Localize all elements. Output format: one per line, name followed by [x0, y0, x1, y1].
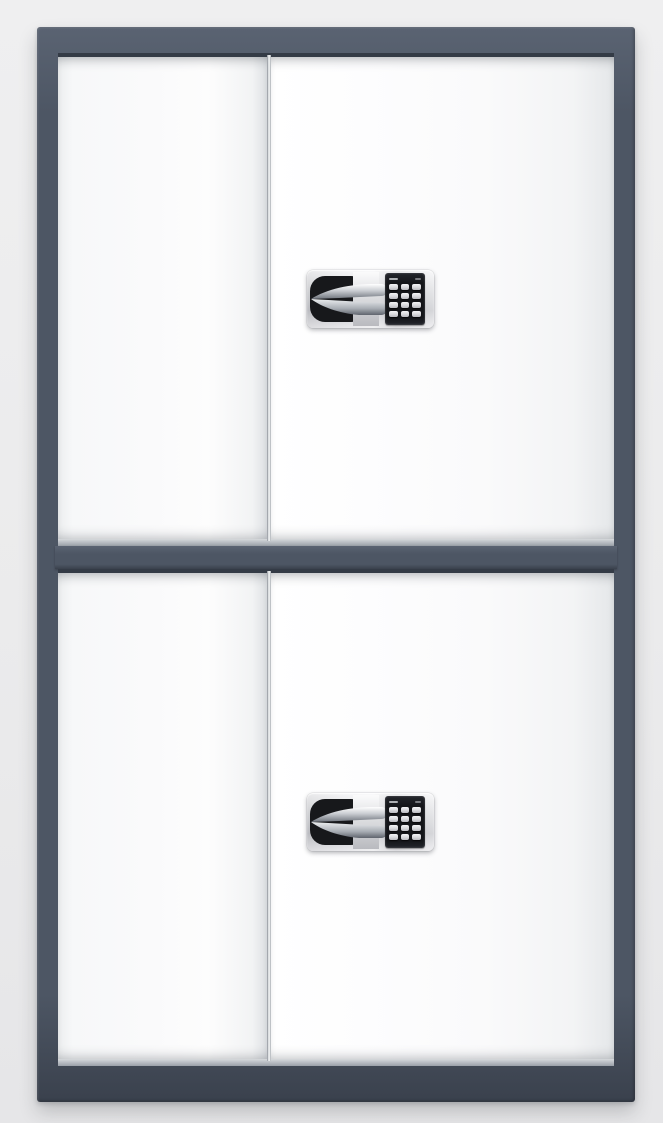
- keypad-key: [401, 284, 410, 290]
- keypad-key: [412, 302, 421, 308]
- keypad-key: [401, 816, 410, 822]
- cabinet: [37, 27, 635, 1102]
- lower-door-seam: [267, 571, 271, 1061]
- keypad-key: [401, 293, 410, 299]
- keypad-model-mark: [415, 278, 421, 280]
- keypad-brand-mark: [389, 801, 398, 803]
- keypad-key: [401, 825, 410, 831]
- product-photo: [0, 0, 663, 1123]
- lower-keypad: [385, 796, 425, 848]
- keypad-key: [389, 284, 398, 290]
- keypad-key: [389, 834, 398, 840]
- keypad-key: [412, 816, 421, 822]
- lower-lock-plate: [307, 793, 434, 851]
- upper-left-door: [58, 57, 267, 539]
- keypad-key: [412, 284, 421, 290]
- keypad-key: [401, 311, 410, 317]
- cabinet-upper-section: [58, 53, 614, 546]
- keypad-brand-mark: [389, 278, 398, 280]
- keypad-label-area: [389, 799, 421, 805]
- keypad-key: [412, 834, 421, 840]
- middle-divider-rail: [55, 546, 617, 569]
- keypad-key: [401, 807, 410, 813]
- lower-left-door: [58, 573, 267, 1059]
- keypad-key: [389, 311, 398, 317]
- upper-keypad: [385, 273, 425, 325]
- swing-handle-icon: [309, 272, 393, 326]
- keypad-key: [412, 293, 421, 299]
- keypad-key: [389, 293, 398, 299]
- keypad-key: [412, 825, 421, 831]
- keypad-key: [389, 807, 398, 813]
- keypad-keys: [389, 807, 421, 840]
- cabinet-lower-section: [58, 569, 614, 1066]
- keypad-model-mark: [415, 801, 421, 803]
- upper-door-seam: [267, 55, 271, 541]
- keypad-key: [389, 816, 398, 822]
- keypad-label-area: [389, 276, 421, 282]
- keypad-key: [389, 302, 398, 308]
- keypad-keys: [389, 284, 421, 317]
- keypad-key: [401, 834, 410, 840]
- upper-lock-plate: [307, 270, 434, 328]
- keypad-key: [389, 825, 398, 831]
- swing-handle-icon: [309, 795, 393, 849]
- keypad-key: [412, 807, 421, 813]
- keypad-key: [412, 311, 421, 317]
- keypad-key: [401, 302, 410, 308]
